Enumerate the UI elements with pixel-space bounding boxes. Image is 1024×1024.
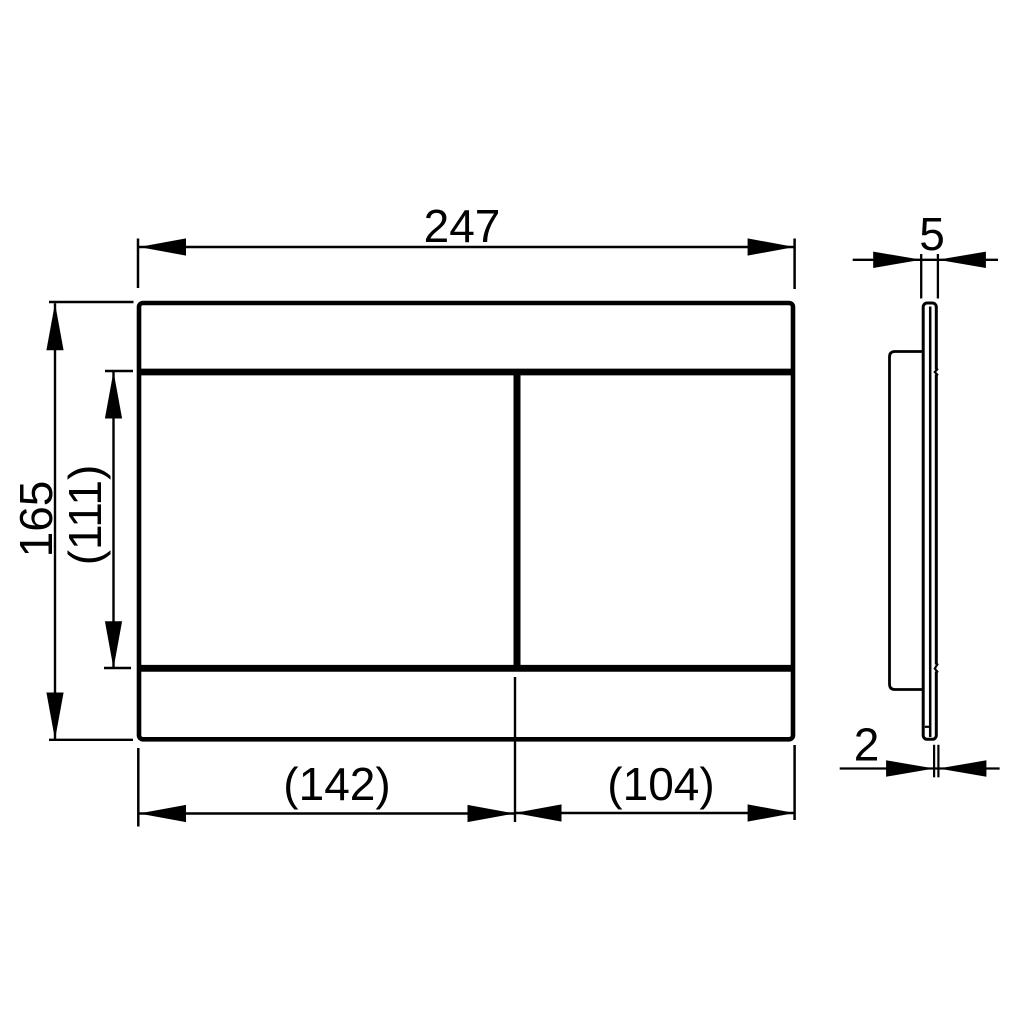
svg-text:(142): (142) bbox=[283, 758, 390, 810]
svg-text:2: 2 bbox=[854, 719, 880, 771]
svg-text:5: 5 bbox=[919, 208, 945, 260]
svg-text:247: 247 bbox=[424, 200, 501, 252]
svg-text:165: 165 bbox=[10, 481, 62, 558]
svg-text:(104): (104) bbox=[607, 758, 714, 810]
svg-text:(111): (111) bbox=[59, 465, 111, 566]
